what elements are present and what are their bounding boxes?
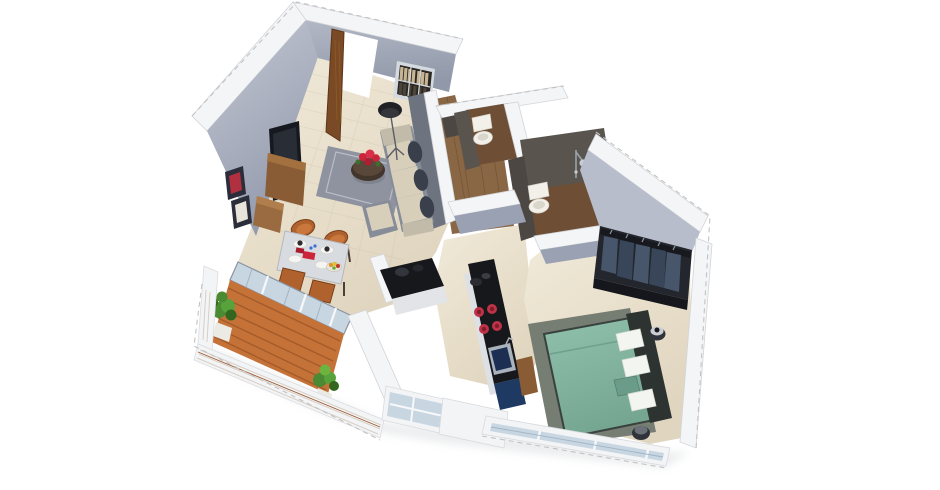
bedroom-furniture xyxy=(528,308,672,446)
apartment-render-stage xyxy=(0,0,940,490)
bedroom-back-wall xyxy=(580,134,708,310)
balcony-kitchen-wall-cut xyxy=(348,310,402,398)
picture-frame-1-art xyxy=(229,172,242,194)
picture-frame-2-art xyxy=(235,201,248,223)
apartment-3d-floorplan xyxy=(0,0,940,490)
